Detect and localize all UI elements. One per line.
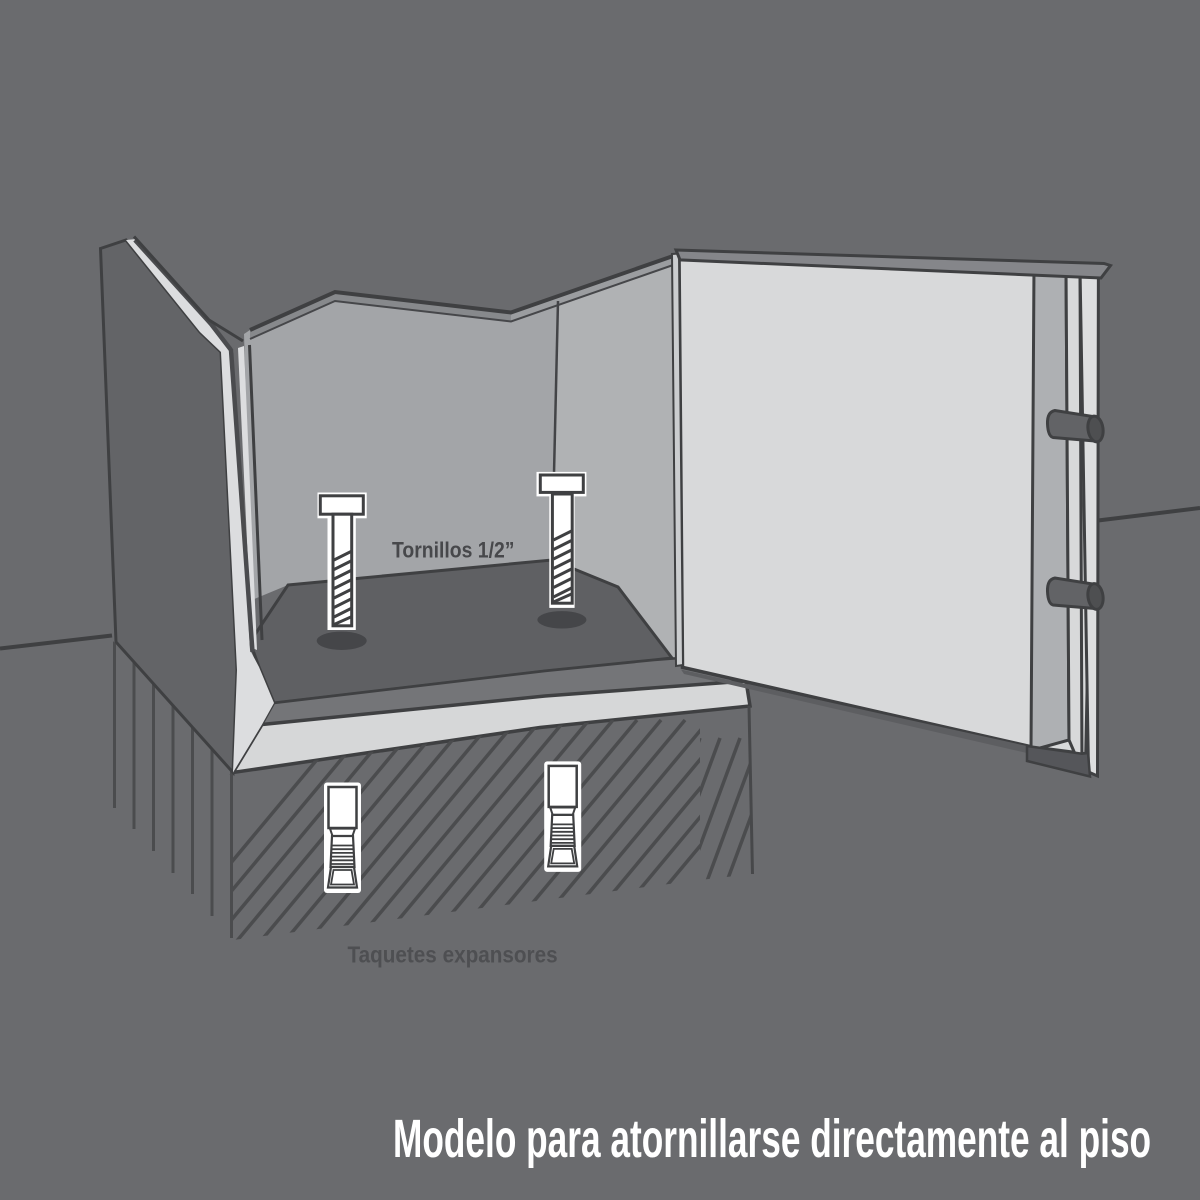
svg-text:Modelo para atornillarse direc: Modelo para atornillarse directamente al… — [393, 1109, 1151, 1169]
svg-text:Tornillos 1/2”: Tornillos 1/2” — [392, 538, 514, 563]
svg-text:Taquetes expansores: Taquetes expansores — [348, 941, 558, 967]
